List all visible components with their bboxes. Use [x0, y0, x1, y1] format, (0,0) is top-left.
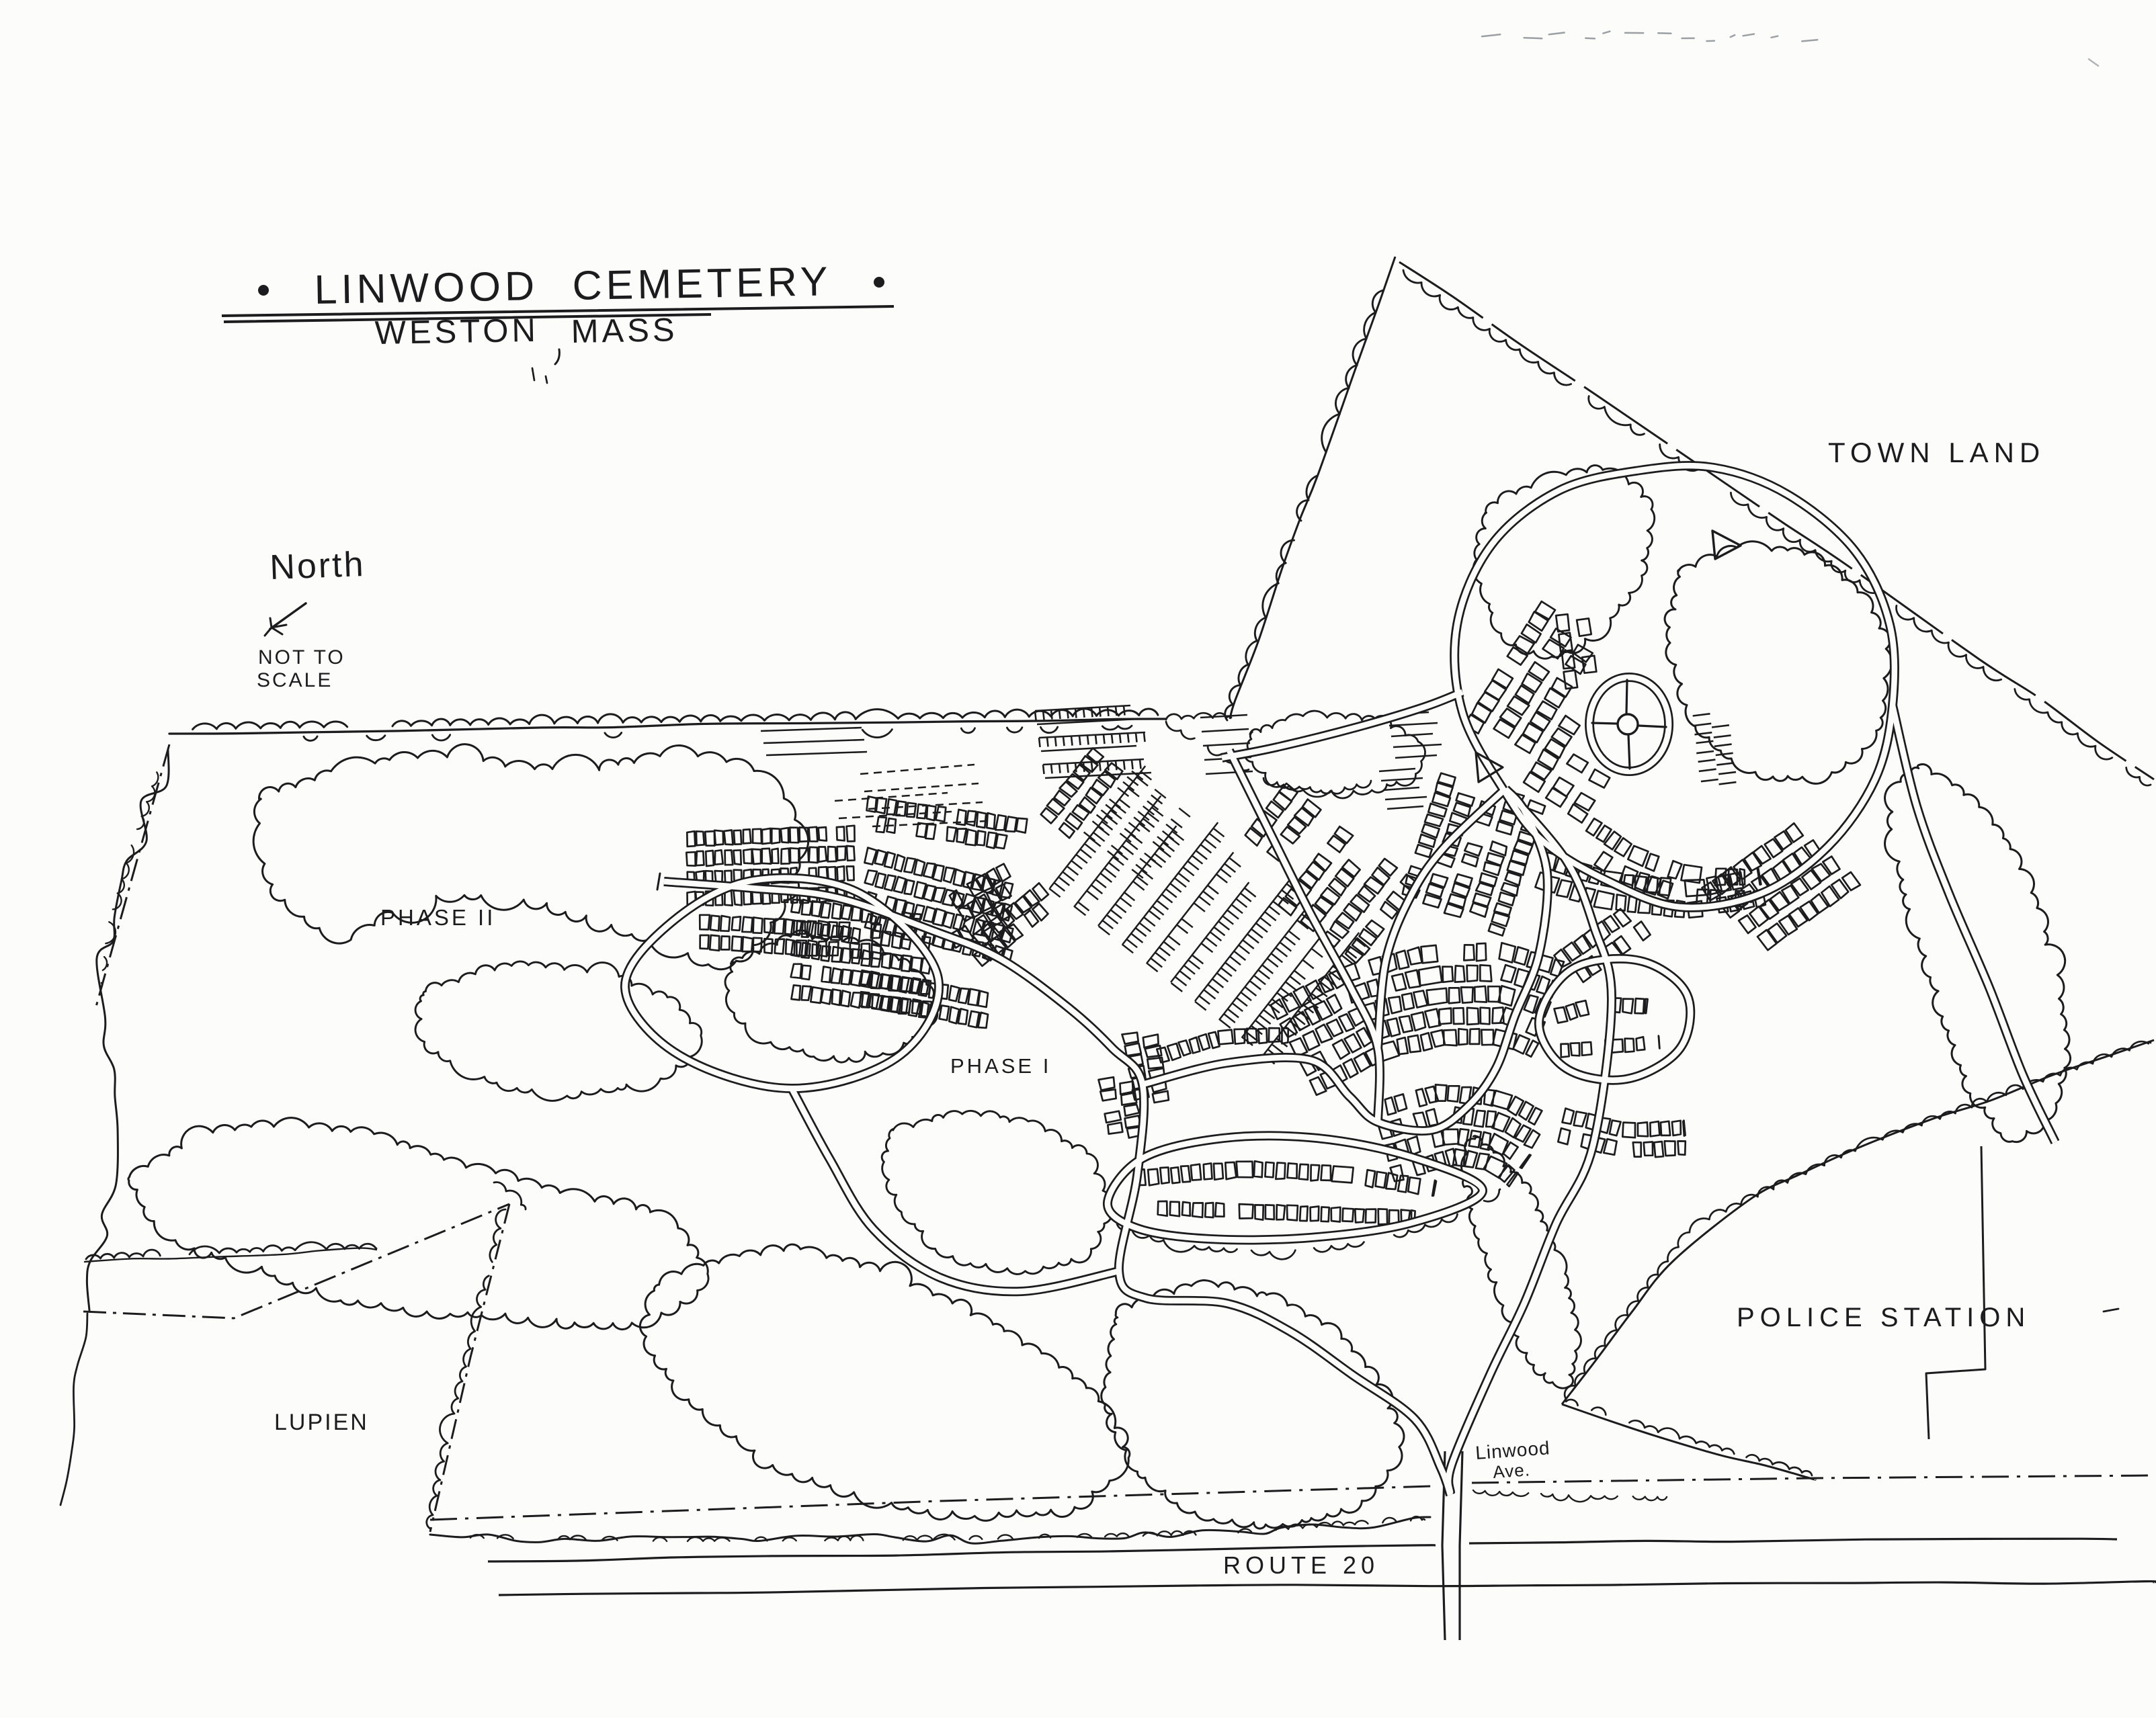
svg-text:CEMETERY: CEMETERY — [572, 258, 832, 308]
svg-text:LINWOOD: LINWOOD — [314, 263, 539, 312]
svg-text:POLICE STATION: POLICE STATION — [1737, 1303, 2030, 1332]
svg-text:WESTON: WESTON — [374, 312, 539, 351]
svg-text:SCALE: SCALE — [257, 669, 333, 691]
svg-text:PHASE I: PHASE I — [950, 1054, 1051, 1078]
svg-text:ROUTE 20: ROUTE 20 — [1223, 1551, 1379, 1579]
svg-text:TOWN LAND: TOWN LAND — [1828, 437, 2045, 468]
svg-text:MASS: MASS — [571, 312, 678, 350]
svg-text:NOT TO: NOT TO — [258, 646, 345, 669]
svg-text:North: North — [269, 545, 366, 587]
svg-text:LUPIEN: LUPIEN — [274, 1410, 369, 1435]
svg-text:Ave.: Ave. — [1492, 1459, 1531, 1482]
